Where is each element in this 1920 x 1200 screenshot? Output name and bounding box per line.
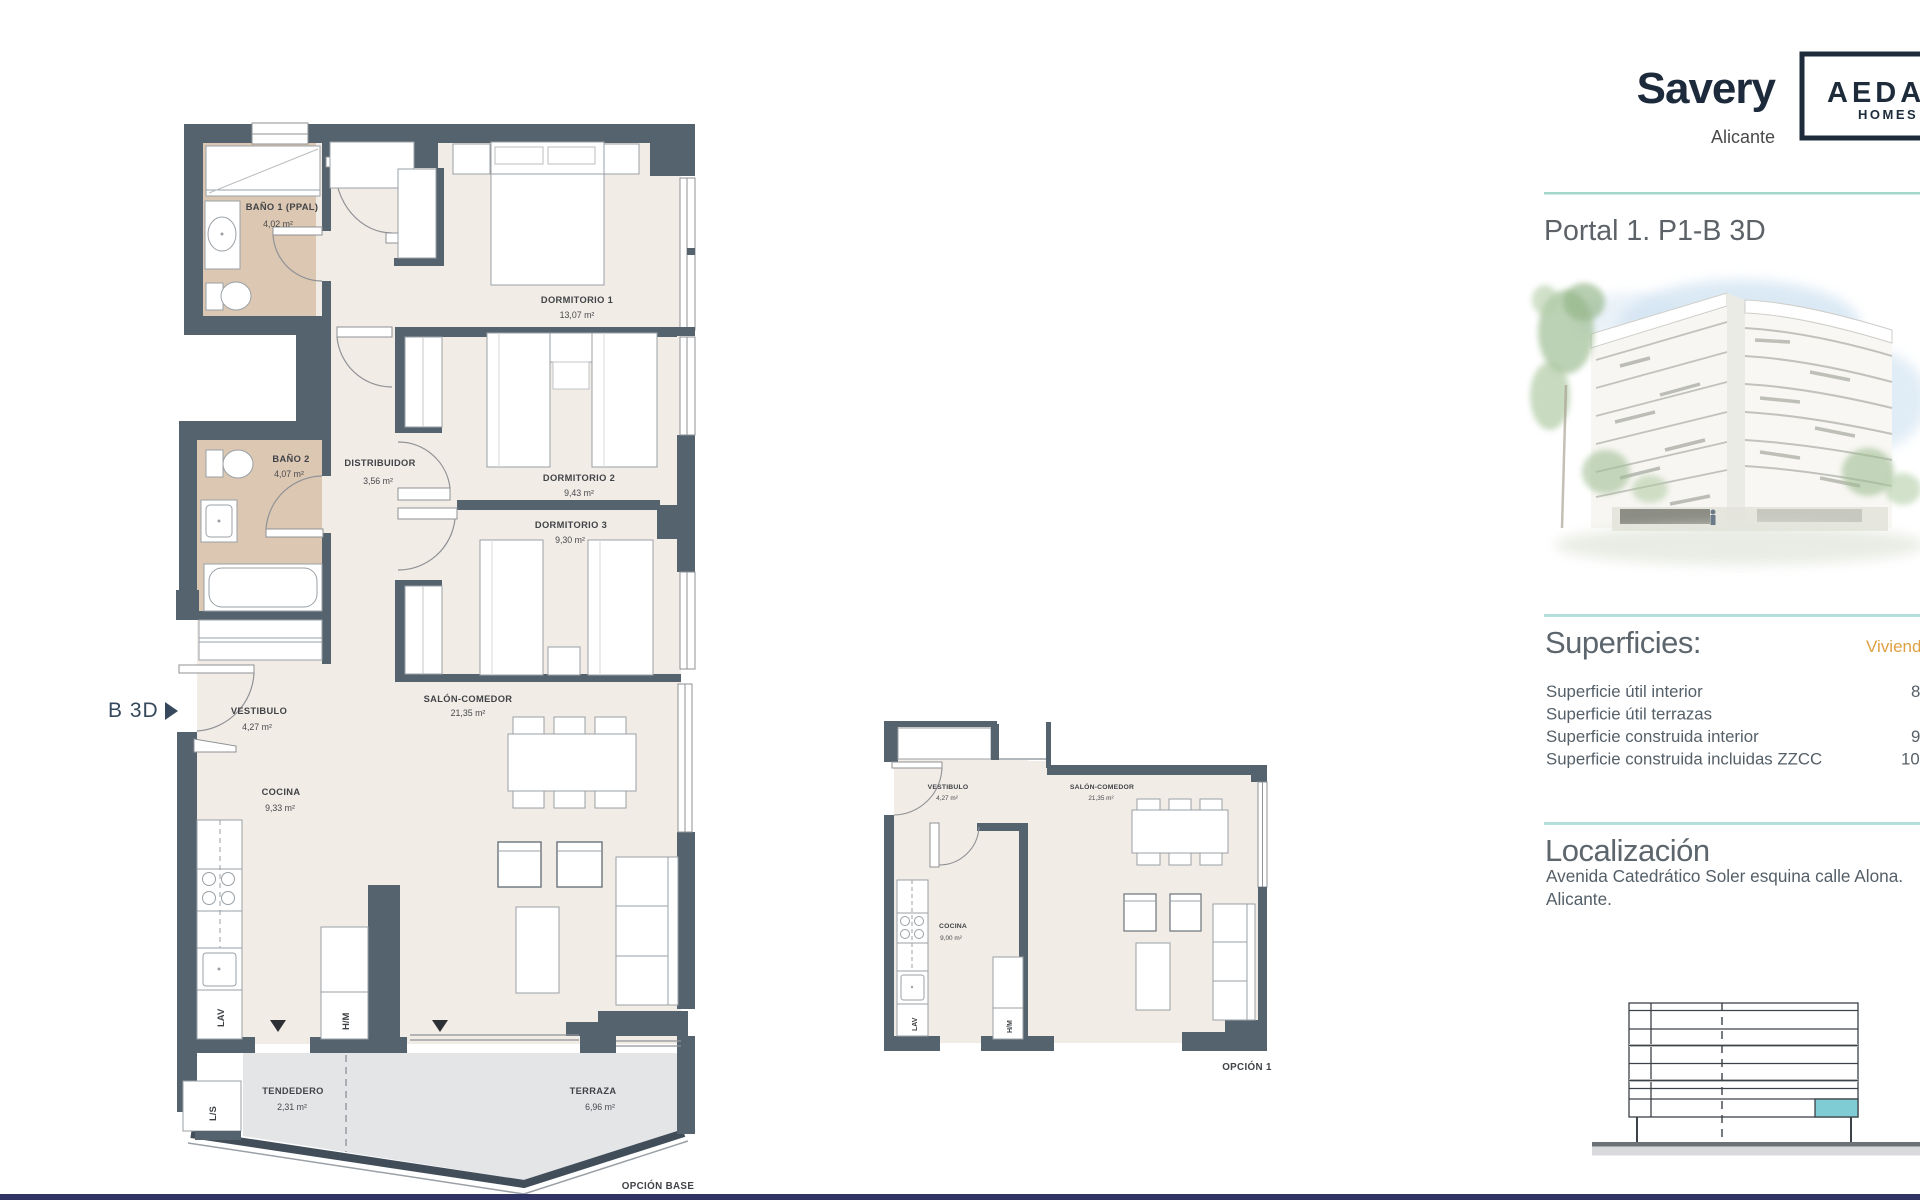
svg-text:4,27 m²: 4,27 m² (936, 795, 958, 802)
svg-text:OPCIÓN BASE: OPCIÓN BASE (622, 1180, 695, 1192)
svg-text:BAÑO 2: BAÑO 2 (272, 454, 309, 464)
svg-text:3,56 m²: 3,56 m² (363, 476, 393, 486)
svg-text:Localización: Localización (1545, 833, 1710, 868)
svg-text:87,65 m²: 87,65 m² (1911, 682, 1920, 701)
svg-text:6,96 m²: 6,96 m² (585, 1102, 615, 1112)
svg-text:Vivienda B: Vivienda B (1866, 637, 1920, 656)
svg-text:95,15 m²: 95,15 m² (1911, 727, 1920, 746)
svg-text:Superficie útil terrazas: Superficie útil terrazas (1546, 705, 1712, 724)
svg-text:Savery: Savery (1637, 64, 1777, 113)
svg-text:DORMITORIO 1: DORMITORIO 1 (541, 295, 613, 305)
svg-text:LAV: LAV (912, 1017, 919, 1031)
svg-text:4,07 m²: 4,07 m² (274, 469, 304, 479)
svg-text:SALÓN-COMEDOR: SALÓN-COMEDOR (424, 693, 513, 704)
svg-text:9,30 m²: 9,30 m² (555, 535, 585, 545)
svg-text:DORMITORIO 3: DORMITORIO 3 (535, 520, 607, 530)
svg-text:Superficie construida incluida: Superficie construida incluidas ZZCC (1546, 750, 1822, 769)
svg-text:Superficie útil interior: Superficie útil interior (1546, 682, 1703, 701)
svg-text:21,35 m²: 21,35 m² (1088, 795, 1113, 802)
svg-text:4,27 m²: 4,27 m² (242, 722, 272, 732)
svg-text:LAV: LAV (216, 1008, 227, 1027)
svg-text:Superficie construida interior: Superficie construida interior (1546, 727, 1759, 746)
svg-text:105,35 m²: 105,35 m² (1901, 750, 1920, 769)
svg-text:HOMES: HOMES (1858, 107, 1918, 122)
svg-text:9,33 m²: 9,33 m² (265, 803, 295, 813)
svg-text:COCINA: COCINA (939, 923, 967, 930)
svg-text:SALÓN-COMEDOR: SALÓN-COMEDOR (1070, 782, 1134, 791)
svg-text:COCINA: COCINA (262, 787, 301, 797)
svg-text:BAÑO 1 (PPAL): BAÑO 1 (PPAL) (246, 202, 319, 212)
svg-text:4,02 m²: 4,02 m² (263, 219, 293, 229)
svg-text:H/M: H/M (1007, 1020, 1014, 1033)
svg-text:Portal 1. P1-B 3D: Portal 1. P1-B 3D (1544, 215, 1766, 247)
svg-text:DISTRIBUIDOR: DISTRIBUIDOR (344, 458, 415, 468)
svg-text:DORMITORIO 2: DORMITORIO 2 (543, 473, 615, 483)
svg-text:9,00 m²: 9,00 m² (940, 935, 962, 942)
svg-text:AEDAS: AEDAS (1827, 77, 1920, 109)
svg-text:Superficies:: Superficies: (1545, 625, 1701, 660)
svg-text:L/S: L/S (208, 1106, 219, 1121)
svg-text:Alicante: Alicante (1711, 127, 1775, 147)
svg-text:Alicante.: Alicante. (1546, 889, 1612, 909)
svg-text:B 3D: B 3D (108, 699, 159, 722)
svg-text:H/M: H/M (341, 1013, 352, 1031)
svg-text:TERRAZA: TERRAZA (570, 1086, 617, 1096)
svg-text:2,31 m²: 2,31 m² (277, 1102, 307, 1112)
svg-text:21,35 m²: 21,35 m² (451, 708, 486, 718)
svg-text:VESTIBULO: VESTIBULO (928, 784, 969, 791)
svg-text:VESTIBULO: VESTIBULO (231, 706, 287, 716)
svg-text:9,43 m²: 9,43 m² (564, 488, 594, 498)
svg-text:OPCIÓN 1: OPCIÓN 1 (1222, 1061, 1272, 1073)
svg-text:13,07 m²: 13,07 m² (560, 310, 595, 320)
svg-text:TENDEDERO: TENDEDERO (262, 1086, 324, 1096)
svg-text:Avenida Catedrático Soler esqu: Avenida Catedrático Soler esquina calle … (1546, 866, 1903, 886)
